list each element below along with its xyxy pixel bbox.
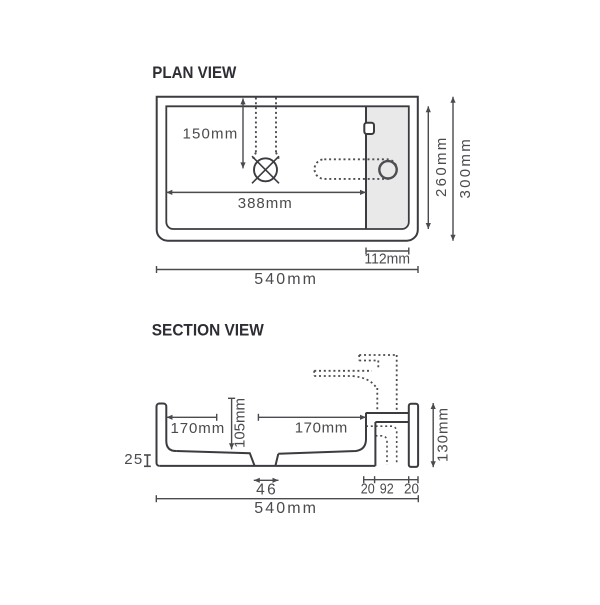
svg-text:170mm: 170mm <box>171 420 225 437</box>
svg-text:130mm: 130mm <box>434 408 451 462</box>
svg-text:170mm: 170mm <box>295 420 348 437</box>
svg-text:388mm: 388mm <box>238 195 292 212</box>
svg-text:105mm: 105mm <box>231 398 248 448</box>
svg-text:20: 20 <box>404 482 419 498</box>
svg-text:25: 25 <box>124 451 142 468</box>
svg-text:112mm: 112mm <box>364 252 410 268</box>
svg-text:PLAN VIEW: PLAN VIEW <box>152 64 237 82</box>
svg-text:92: 92 <box>380 482 394 498</box>
svg-text:150mm: 150mm <box>183 125 238 142</box>
svg-text:20: 20 <box>361 482 375 498</box>
svg-text:SECTION VIEW: SECTION VIEW <box>152 321 265 339</box>
